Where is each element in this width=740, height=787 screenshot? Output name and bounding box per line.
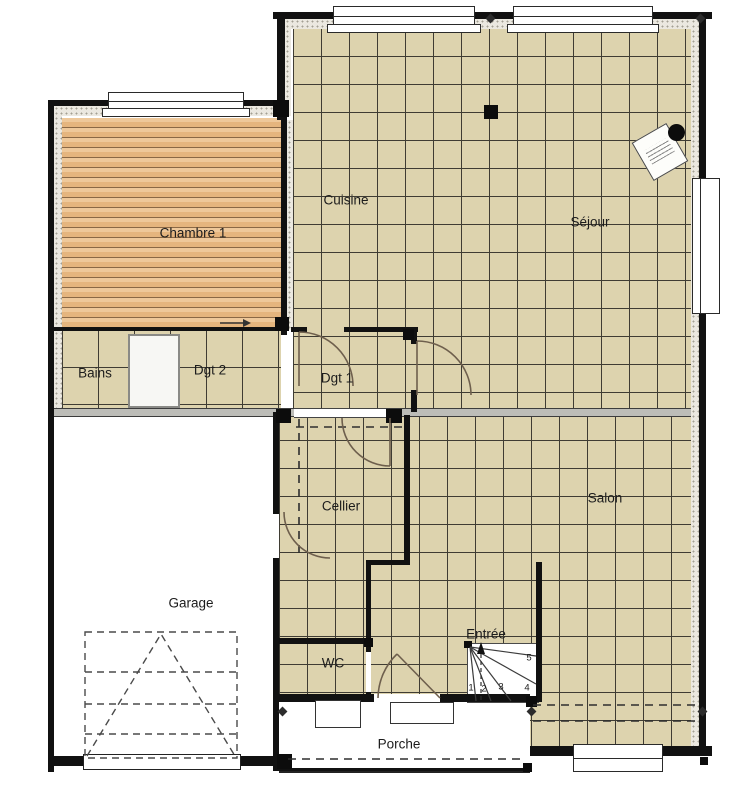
room-label-entree: Entrée — [466, 627, 506, 642]
overhang-dashed-lines — [288, 419, 701, 759]
room-label-chambre1: Chambre 1 — [160, 226, 227, 241]
door-arc-cellier-left — [284, 512, 330, 558]
room-label-bains: Bains — [78, 366, 112, 381]
floor-plan: Cuisine Séjour Chambre 1 Bains Dgt 2 Dgt… — [0, 0, 740, 787]
door-arc-cellier-top — [342, 418, 390, 466]
room-label-garage: Garage — [168, 596, 213, 611]
room-label-sejour: Séjour — [570, 215, 609, 230]
room-label-dgt1: Dgt 1 — [321, 371, 353, 386]
room-label-wc: WC — [322, 656, 345, 671]
stair-step-number-1: 1 — [468, 683, 473, 694]
stair-step-number-5: 5 — [526, 653, 531, 664]
door-arc-entrance — [378, 654, 440, 698]
room-label-porche: Porche — [378, 737, 421, 752]
room-label-salon: Salon — [588, 491, 623, 506]
room-label-cellier: Cellier — [322, 499, 360, 514]
room-label-cuisine: Cuisine — [323, 193, 368, 208]
stair-step-number-4: 4 — [524, 683, 529, 694]
stair-step-number-3: 3 — [498, 682, 503, 693]
stair-step-number-2: 2 — [481, 684, 486, 695]
door-arc-sejour — [417, 341, 471, 395]
door-swings — [284, 332, 471, 698]
garage-door-symbol — [85, 632, 237, 758]
room-label-dgt2: Dgt 2 — [194, 363, 226, 378]
linework-overlay — [0, 0, 740, 787]
chambre-door-arrow — [220, 319, 251, 327]
